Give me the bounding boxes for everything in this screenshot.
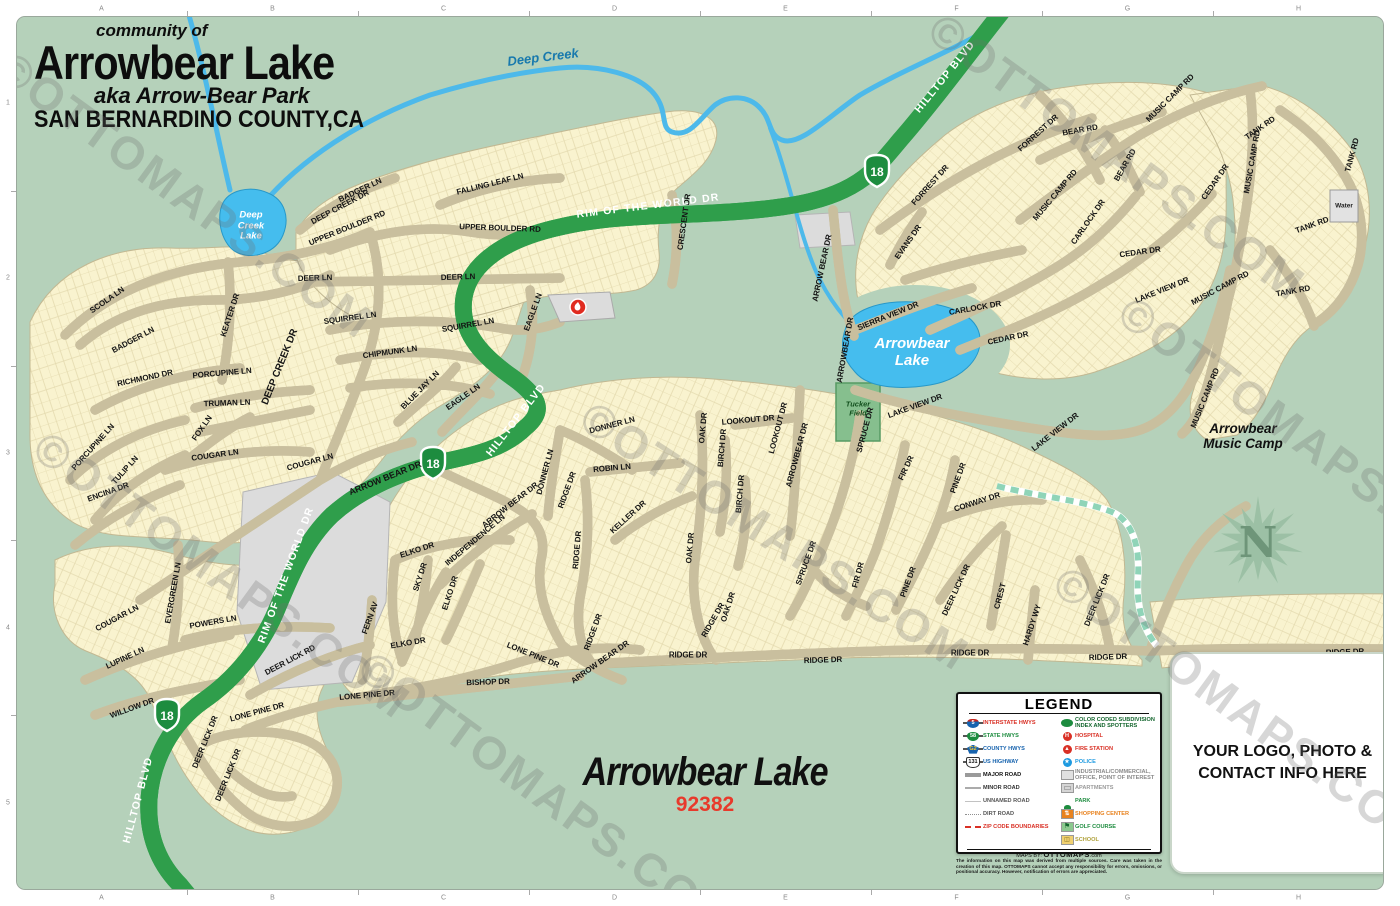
legend-item-label: INTERSTATE HWYS (983, 720, 1036, 726)
grid-label: 1 (6, 100, 10, 107)
grid-tick (187, 11, 188, 16)
legend-item-label: STATE HWYS (983, 733, 1019, 739)
legend-item-label: POLICE (1075, 759, 1096, 765)
grid-label: D (612, 6, 617, 13)
grid-tick (529, 890, 530, 895)
legend-item-label: GOLF COURSE (1075, 824, 1116, 830)
grid-tick (1213, 890, 1214, 895)
grid-label: A (99, 6, 104, 13)
grid-tick (700, 11, 701, 16)
industrial-icon (1059, 770, 1075, 780)
deep-creek-lake (220, 189, 286, 255)
grid-tick (700, 890, 701, 895)
legend-item-label: MAJOR ROAD (983, 772, 1021, 778)
legend-item-county: G2COUNTY HWYS (963, 743, 1059, 755)
legend-item-school: ◫SCHOOL (1059, 834, 1155, 846)
legend-item-dirt: DIRT ROAD (963, 808, 1059, 820)
legend-item-state: 58STATE HWYS (963, 730, 1059, 742)
svg-text:18: 18 (160, 709, 174, 723)
legend-item-zip: ZIP CODE BOUNDARIES (963, 821, 1059, 833)
grid-tick (871, 890, 872, 895)
legend-right-column: COLOR CODED SUBDIVISION INDEX AND SPOTTE… (1059, 717, 1155, 847)
legend-item-label: SHOPPING CENTER (1075, 811, 1129, 817)
legend-item-minor: MINOR ROAD (963, 782, 1059, 794)
grid-label: G (1125, 6, 1130, 13)
golf-icon: ⚑ (1059, 822, 1075, 832)
logo-box-line2: CONTACT INFO HERE (1193, 763, 1372, 785)
legend-item-shopping: ⇅SHOPPING CENTER (1059, 808, 1155, 820)
grid-tick (187, 890, 188, 895)
grid-tick (1042, 11, 1043, 16)
legend-item-label: DIRT ROAD (983, 811, 1014, 817)
police-icon: ★ (1059, 758, 1075, 767)
frame-top: ABCDEFGH (0, 0, 1400, 16)
water-tank (1330, 190, 1358, 222)
route-shield-18: 18 (421, 447, 445, 479)
grid-label: E (783, 895, 788, 902)
legend-item-golf: ⚑GOLF COURSE (1059, 821, 1155, 833)
apartments-icon (1059, 783, 1075, 793)
fire-station-icon (548, 292, 615, 322)
legend-item-label: US HIGHWAY (983, 759, 1019, 765)
legend-item-label: INDUSTRIAL/COMMERCIAL, OFFICE, POINT OF … (1075, 769, 1155, 781)
legend: LEGEND 5INTERSTATE HWYS58STATE HWYSG2COU… (956, 692, 1162, 854)
legend-item-industrial: INDUSTRIAL/COMMERCIAL, OFFICE, POINT OF … (1059, 769, 1155, 781)
state-icon: 58 (963, 732, 983, 741)
major-icon (963, 773, 983, 777)
grid-label: E (783, 6, 788, 13)
grid-label: F (954, 6, 958, 13)
legend-item-label: PARK (1075, 798, 1090, 804)
legend-item-interstate: 5INTERSTATE HWYS (963, 717, 1059, 729)
legend-title: LEGEND (963, 696, 1155, 713)
legend-item-apartments: APARTMENTS (1059, 782, 1155, 794)
disclaimer-text: The information on this map was derived … (956, 858, 1162, 875)
legend-item-label: FIRE STATION (1075, 746, 1113, 752)
frame-left: 12345 (0, 0, 16, 906)
grid-label: B (270, 895, 275, 902)
svg-text:18: 18 (426, 457, 440, 471)
us-icon: 131 (963, 757, 983, 768)
legend-item-fire: ▲FIRE STATION (1059, 743, 1155, 755)
legend-item-label: COLOR CODED SUBDIVISION INDEX AND SPOTTE… (1075, 717, 1155, 729)
legend-item-label: ZIP CODE BOUNDARIES (983, 824, 1048, 830)
legend-item-hospital: HHOSPITAL (1059, 730, 1155, 742)
grid-label: 5 (6, 799, 10, 806)
title-block: community of Arrowbear Lake aka Arrow-Be… (34, 22, 401, 132)
school-icon: ◫ (1059, 835, 1075, 845)
grid-label: B (270, 6, 275, 13)
legend-item-subdiv: COLOR CODED SUBDIVISION INDEX AND SPOTTE… (1059, 717, 1155, 729)
map-canvas: 181818 N SCOLA LNBADGER LNBADGER LNKEATE… (16, 16, 1384, 890)
park-icon (1059, 797, 1075, 805)
grid-label: C (441, 895, 446, 902)
legend-item-label: COUNTY HWYS (983, 746, 1025, 752)
grid-label: 4 (6, 624, 10, 631)
legend-item-label: HOSPITAL (1075, 733, 1103, 739)
compass-n: N (1239, 518, 1277, 567)
legend-item-major: MAJOR ROAD (963, 769, 1059, 781)
fire-icon: ▲ (1059, 745, 1075, 754)
dirt-icon (963, 814, 983, 815)
county-icon: G2 (963, 745, 983, 754)
title-county: SAN BERNARDINO COUNTY,CA (34, 108, 364, 132)
grid-tick (11, 540, 16, 541)
grid-label: G (1125, 895, 1130, 902)
grid-label: F (954, 895, 958, 902)
legend-item-label: UNNAMED ROAD (983, 798, 1030, 804)
hospital-icon: H (1059, 732, 1075, 741)
legend-item-label: MINOR ROAD (983, 785, 1020, 791)
route-shield-18: 18 (155, 699, 179, 731)
unnamed-icon (963, 801, 983, 802)
legend-item-police: ★POLICE (1059, 756, 1155, 768)
zip-icon (963, 826, 983, 828)
grid-label: 3 (6, 450, 10, 457)
route-shield-18: 18 (865, 155, 889, 187)
interstate-icon: 5 (963, 719, 983, 728)
svg-text:18: 18 (870, 165, 884, 179)
grid-tick (358, 11, 359, 16)
bottom-title-name: Arrowbear Lake (582, 750, 827, 795)
legend-item-us: 131US HIGHWAY (963, 756, 1059, 768)
logo-box-line1: YOUR LOGO, PHOTO & (1193, 741, 1372, 763)
zip-code: 92382 (540, 793, 870, 817)
legend-left-column: 5INTERSTATE HWYS58STATE HWYSG2COUNTY HWY… (963, 717, 1059, 847)
legend-item-label: APARTMENTS (1075, 785, 1113, 791)
grid-label: A (99, 895, 104, 902)
legend-item-park: PARK (1059, 795, 1155, 807)
grid-label: C (441, 6, 446, 13)
bottom-title: Arrowbear Lake 92382 (540, 750, 870, 817)
grid-tick (358, 890, 359, 895)
logo-placeholder-box: YOUR LOGO, PHOTO & CONTACT INFO HERE (1170, 652, 1384, 874)
legend-item-unnamed: UNNAMED ROAD (963, 795, 1059, 807)
grid-tick (11, 191, 16, 192)
frame-bottom: ABCDEFGH (0, 890, 1400, 906)
grid-label: D (612, 895, 617, 902)
grid-label: 2 (6, 275, 10, 282)
grid-tick (1213, 11, 1214, 16)
grid-tick (11, 366, 16, 367)
grid-label: H (1296, 6, 1301, 13)
frame-right: 12345 (1384, 0, 1400, 906)
grid-label: H (1296, 895, 1301, 902)
grid-tick (529, 11, 530, 16)
page-title: Arrowbear Lake (34, 39, 334, 87)
map-page: 181818 N SCOLA LNBADGER LNBADGER LNKEATE… (0, 0, 1400, 906)
grid-tick (1042, 890, 1043, 895)
grid-tick (11, 715, 16, 716)
legend-item-label: SCHOOL (1075, 837, 1099, 843)
minor-icon (963, 787, 983, 789)
shopping-icon: ⇅ (1059, 809, 1075, 819)
subdiv-icon (1059, 719, 1075, 727)
grid-tick (871, 11, 872, 16)
